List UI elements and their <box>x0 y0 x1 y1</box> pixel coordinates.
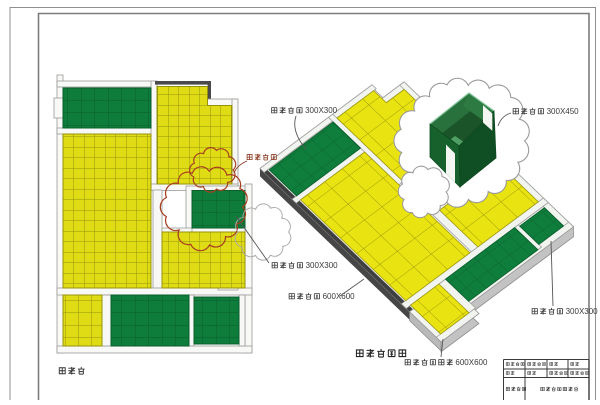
svg-text:300X300: 300X300 <box>566 307 599 316</box>
svg-text:300X300: 300X300 <box>305 106 338 115</box>
svg-text:600X600: 600X600 <box>323 292 356 301</box>
svg-text:300X300: 300X300 <box>306 261 339 270</box>
svg-text:600X600: 600X600 <box>455 358 488 367</box>
svg-text:300X450: 300X450 <box>547 107 580 116</box>
